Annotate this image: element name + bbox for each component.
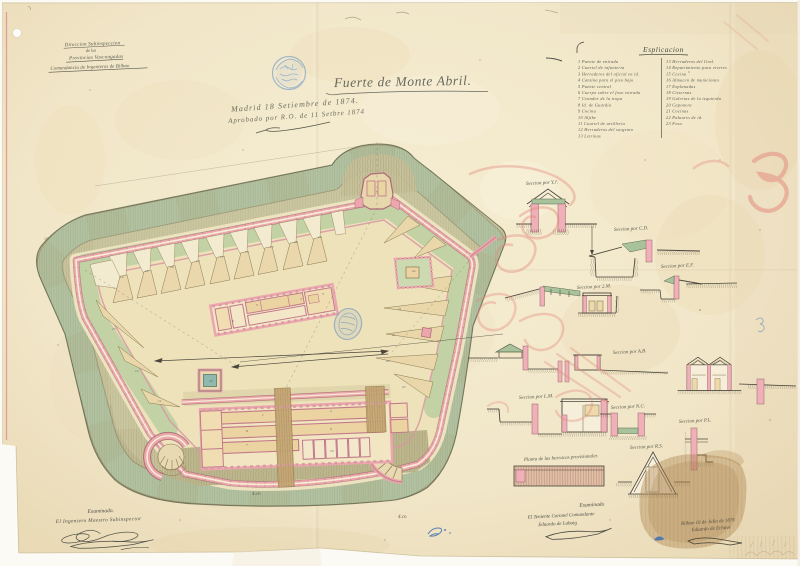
svg-text:12: 12 — [135, 369, 139, 373]
svg-text:8: 8 — [246, 429, 248, 433]
svg-text:5: 5 — [256, 303, 258, 307]
svg-text:13: 13 — [112, 327, 116, 331]
svg-text:Examinado.: Examinado. — [86, 508, 114, 515]
svg-text:5 Puente central: 5 Puente central — [578, 84, 612, 89]
svg-text:21: 21 — [392, 333, 396, 337]
svg-text:4: 4 — [300, 297, 302, 301]
svg-text:2 Cuartel de infanteria: 2 Cuartel de infanteria — [578, 65, 624, 70]
svg-text:1: 1 — [376, 189, 378, 193]
svg-text:3: 3 — [322, 292, 324, 296]
svg-text:8 Id. de Guardia: 8 Id. de Guardia — [578, 102, 611, 107]
svg-text:2: 2 — [330, 409, 332, 413]
svg-text:12 Herraderos del sargento: 12 Herraderos del sargento — [578, 127, 634, 132]
svg-text:19: 19 — [318, 235, 322, 239]
svg-text:16: 16 — [170, 265, 174, 269]
svg-text:1 Puente de entrada: 1 Puente de entrada — [578, 59, 618, 64]
svg-text:21: 21 — [398, 307, 402, 311]
svg-text:17: 17 — [270, 245, 274, 249]
svg-text:18: 18 — [294, 240, 298, 244]
svg-text:Fuerte de Monte Abril.: Fuerte de Monte Abril. — [333, 73, 472, 90]
svg-text:14 Repartimiento para viveres: 14 Repartimiento para viveres — [666, 65, 727, 70]
svg-text:23 Foso: 23 Foso — [666, 121, 683, 126]
svg-text:7 Cenador de la tropa: 7 Cenador de la tropa — [578, 96, 622, 101]
svg-text:3 Herraderos del oficial en i: 3 Herraderos del oficial en id. — [578, 71, 639, 76]
svg-text:17: 17 — [196, 259, 200, 263]
svg-text:10 Aljibe: 10 Aljibe — [578, 115, 596, 120]
svg-text:17 Explanadas: 17 Explanadas — [666, 84, 696, 89]
svg-text:20: 20 — [209, 379, 213, 383]
svg-text:18 Cisternas: 18 Cisternas — [666, 90, 691, 95]
svg-text:4.co: 4.co — [398, 515, 407, 520]
svg-text:11 Cuartel de artilleria: 11 Cuartel de artilleria — [578, 121, 625, 126]
svg-text:9: 9 — [330, 427, 332, 431]
svg-text:de las: de las — [86, 48, 97, 53]
svg-text:7: 7 — [246, 443, 248, 447]
svg-text:10: 10 — [330, 449, 334, 453]
svg-text:11: 11 — [158, 399, 161, 403]
svg-text:9 Cocina: 9 Cocina — [578, 109, 596, 114]
svg-text:14: 14 — [120, 275, 124, 279]
svg-text:4 Cantina para el piso bajo: 4 Cantina para el piso bajo — [578, 78, 634, 83]
svg-text:4.co: 4.co — [252, 492, 261, 497]
svg-text:24: 24 — [412, 269, 416, 273]
svg-text:15 Cocina: 15 Cocina — [666, 71, 686, 76]
svg-text:16 Almacen de municiones: 16 Almacen de municiones — [666, 78, 719, 83]
svg-text:Esplicacion: Esplicacion — [642, 45, 684, 54]
svg-text:22: 22 — [386, 359, 390, 363]
svg-text:17: 17 — [220, 255, 224, 259]
svg-text:17: 17 — [245, 250, 249, 254]
svg-text:6: 6 — [232, 319, 234, 323]
svg-text:13 Letrinas: 13 Letrinas — [578, 133, 601, 138]
svg-text:13 Herraderos del Gral.: 13 Herraderos del Gral. — [666, 59, 715, 64]
svg-text:6 Cuerpo sobre el foso entrad: 6 Cuerpo sobre el foso entrada — [578, 90, 640, 95]
svg-text:15: 15 — [145, 269, 149, 273]
svg-text:1: 1 — [262, 413, 264, 417]
svg-text:22 Paluario de id.: 22 Paluario de id. — [666, 115, 703, 120]
svg-text:20 Caponera: 20 Caponera — [666, 102, 692, 107]
svg-text:23: 23 — [402, 385, 406, 389]
svg-text:19 Galerias de la izquierda: 19 Galerias de la izquierda — [666, 96, 721, 101]
svg-text:21 Cocinas: 21 Cocinas — [666, 109, 688, 114]
